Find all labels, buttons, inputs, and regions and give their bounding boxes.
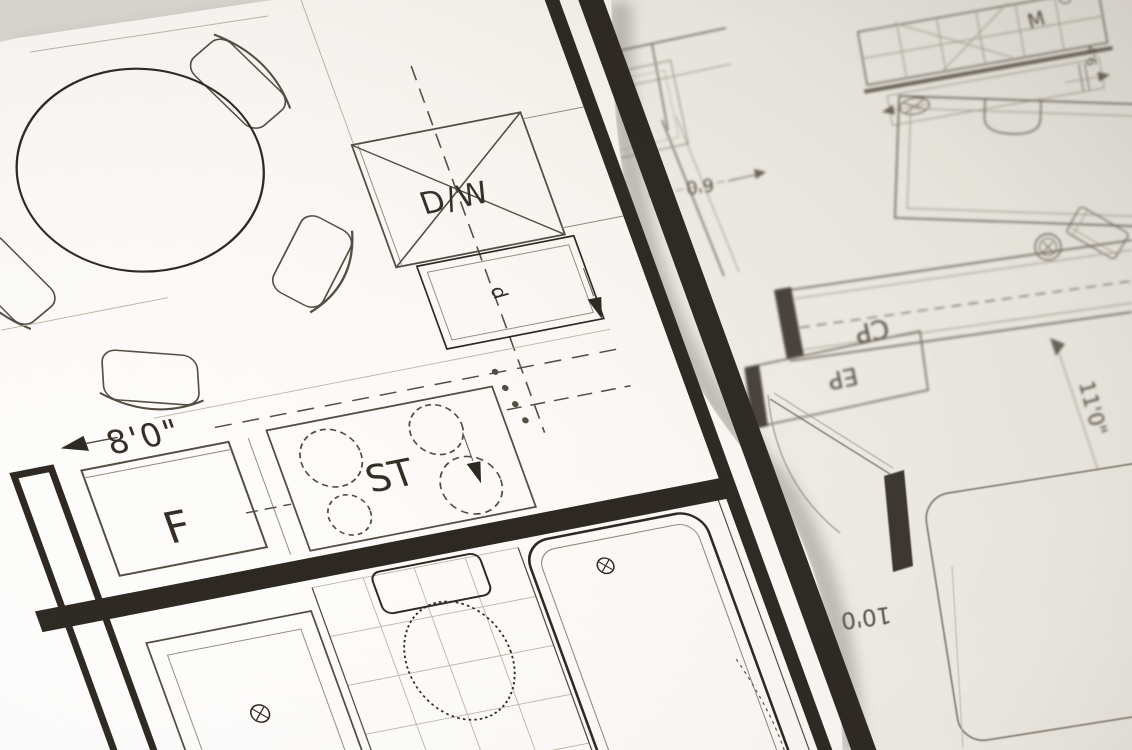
blueprint-photo-svg: M 4'6 d 6'0 [0, 0, 1132, 750]
blueprint-photo: M 4'6 d 6'0 [0, 0, 1132, 750]
vignette-overlay [0, 0, 1132, 750]
